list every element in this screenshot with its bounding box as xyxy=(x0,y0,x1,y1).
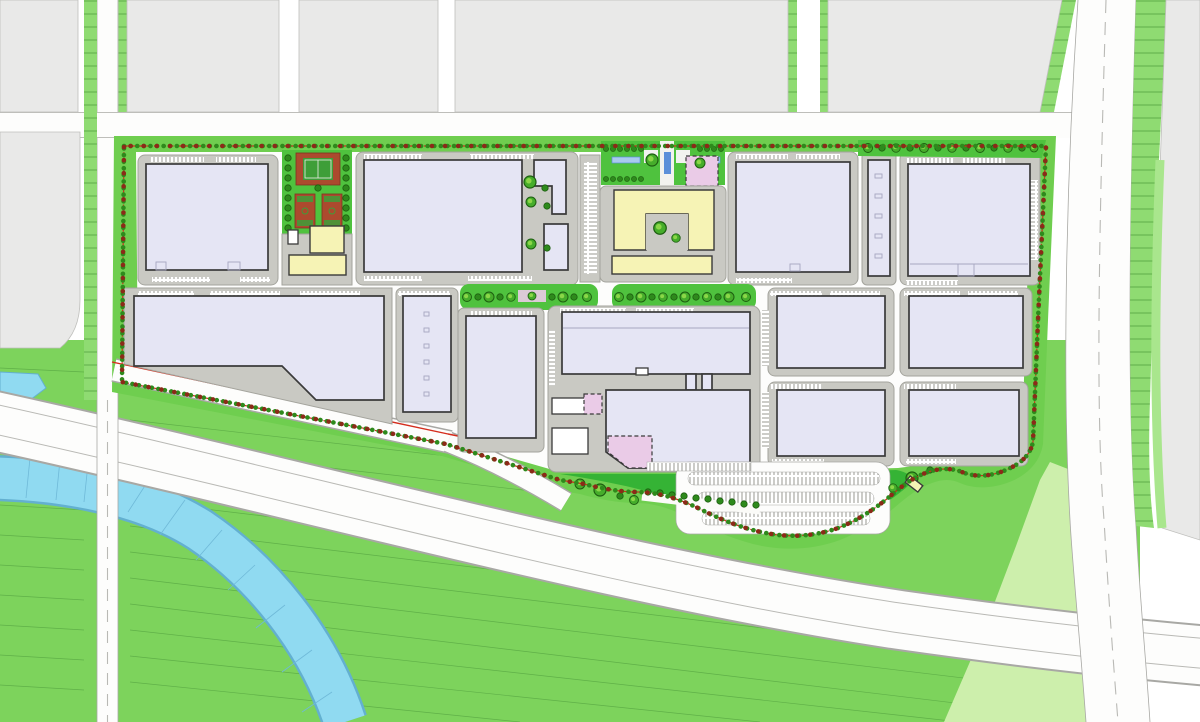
water-feature xyxy=(664,152,671,174)
utility-building xyxy=(403,296,451,412)
hedge-strip xyxy=(820,0,828,112)
parking-stalls xyxy=(906,280,958,285)
warehouse-building xyxy=(146,164,268,270)
context-block xyxy=(0,0,78,112)
parking-stalls xyxy=(216,157,256,162)
site-plan-drawing xyxy=(0,0,1200,722)
context-block xyxy=(455,0,788,112)
tree xyxy=(654,222,667,235)
parcel-sports xyxy=(282,150,352,285)
parcel-central-complex xyxy=(548,306,760,472)
parcel-mid xyxy=(458,308,544,452)
small-building xyxy=(288,230,298,244)
link-corridor xyxy=(686,374,696,390)
parcel-north xyxy=(356,152,600,285)
factory-hall xyxy=(562,312,750,374)
amenity-building xyxy=(289,255,346,275)
link-corridor xyxy=(702,374,712,390)
parcel-ne-b xyxy=(862,152,896,285)
warehouse-building xyxy=(466,316,536,438)
parking-stalls xyxy=(549,330,555,386)
planned-building xyxy=(584,394,602,414)
parcel-ne-c xyxy=(900,152,1040,285)
warehouse-building xyxy=(909,296,1023,368)
service-building xyxy=(552,428,588,454)
north-tree-band xyxy=(858,140,1046,158)
parking-stalls xyxy=(796,154,840,159)
parking-stalls xyxy=(584,162,597,274)
water-feature xyxy=(612,157,640,163)
basketball-court xyxy=(322,194,342,228)
courtyard xyxy=(646,214,688,250)
warehouse-building xyxy=(777,296,885,368)
parking-stalls xyxy=(240,277,270,282)
parcel-nw xyxy=(138,155,278,285)
context-block xyxy=(299,0,438,112)
hedge-strip xyxy=(119,0,128,112)
parking-stalls xyxy=(736,278,792,283)
warehouse-building xyxy=(364,160,522,272)
service-building xyxy=(552,398,586,414)
basketball-court xyxy=(295,194,315,228)
warehouse-building xyxy=(908,164,1030,276)
parking-stalls xyxy=(736,154,788,159)
parking-row xyxy=(647,462,751,471)
parking-stalls xyxy=(962,158,1006,163)
parking-stalls xyxy=(906,158,954,163)
parking-stalls xyxy=(364,276,422,281)
context-block xyxy=(0,132,80,348)
context-block xyxy=(127,0,279,112)
parking-stalls xyxy=(364,154,422,159)
parking-row xyxy=(688,472,880,485)
entry-notch xyxy=(636,368,648,375)
parcel-office-complex xyxy=(600,186,726,282)
site-plan-page xyxy=(0,0,1200,722)
context-block xyxy=(828,0,1062,112)
tree xyxy=(672,234,681,243)
hedge-strip xyxy=(84,0,97,400)
amenity-building xyxy=(310,226,344,253)
parking-stalls xyxy=(470,154,534,159)
parking-stalls xyxy=(152,277,210,282)
parking-stalls xyxy=(468,276,532,281)
parking-stalls xyxy=(1030,180,1038,260)
tree xyxy=(695,158,705,168)
parking-stalls xyxy=(150,157,204,162)
warehouse-building xyxy=(736,162,850,272)
parcel-ne-a xyxy=(728,152,858,285)
parcel-west-b xyxy=(396,288,458,422)
north-street xyxy=(0,112,1078,138)
amenity-bar-building xyxy=(612,256,712,274)
warehouse-building xyxy=(777,390,885,456)
warehouse-building xyxy=(909,390,1019,456)
hedge-strip xyxy=(788,0,797,112)
